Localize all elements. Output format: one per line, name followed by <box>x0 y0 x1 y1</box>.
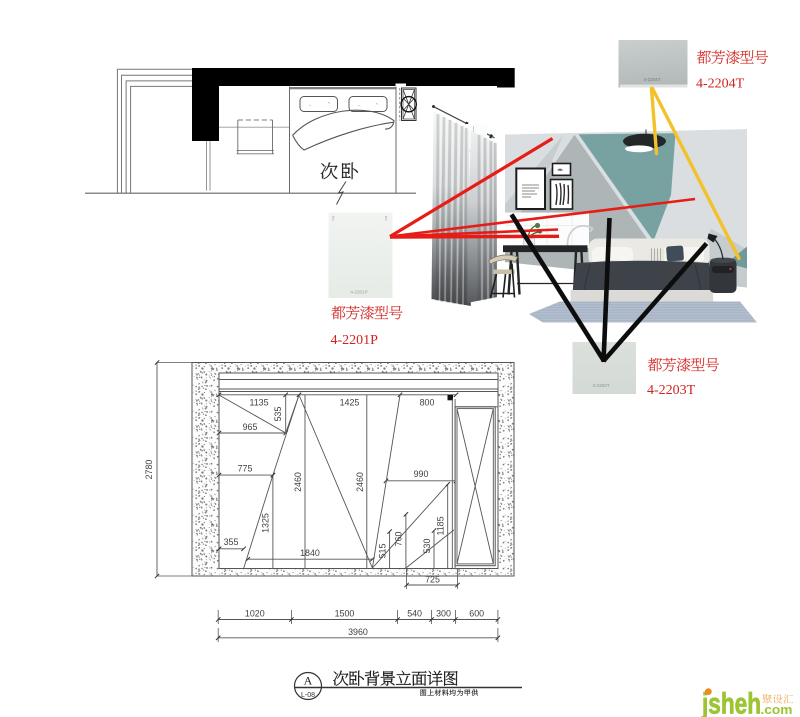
svg-text:4-2203T: 4-2203T <box>592 383 609 388</box>
svg-text:2460: 2460 <box>293 472 303 492</box>
svg-text:530: 530 <box>422 539 432 554</box>
svg-text:4-2201P: 4-2201P <box>331 333 379 348</box>
svg-text:4-2204T: 4-2204T <box>643 77 660 82</box>
svg-text:4-2204T: 4-2204T <box>696 77 745 92</box>
svg-text:535: 535 <box>273 407 283 422</box>
svg-text:990: 990 <box>414 469 429 479</box>
svg-text:1325: 1325 <box>261 513 271 533</box>
svg-text:725: 725 <box>425 575 440 585</box>
svg-text:600: 600 <box>469 609 484 619</box>
svg-text:800: 800 <box>420 398 435 408</box>
svg-text:300: 300 <box>436 609 451 619</box>
svg-text:4-2201P: 4-2201P <box>350 290 367 295</box>
svg-text:515: 515 <box>377 544 387 559</box>
svg-text:A: A <box>304 674 313 688</box>
svg-text:2460: 2460 <box>355 472 365 492</box>
svg-text:1135: 1135 <box>249 398 268 408</box>
svg-text:965: 965 <box>243 422 258 432</box>
svg-text:1020: 1020 <box>245 609 265 619</box>
svg-text:1185: 1185 <box>436 516 446 535</box>
svg-text:540: 540 <box>407 609 422 619</box>
svg-text:L-08: L-08 <box>301 692 315 699</box>
svg-text:355: 355 <box>224 537 239 547</box>
svg-text:1840: 1840 <box>300 548 320 558</box>
svg-text:3960: 3960 <box>348 627 368 637</box>
svg-text:2780: 2780 <box>144 460 154 480</box>
svg-text:.com: .com <box>761 703 793 717</box>
svg-text:1425: 1425 <box>340 398 360 408</box>
svg-text:1500: 1500 <box>335 609 355 619</box>
svg-text:4-2203T: 4-2203T <box>647 383 696 398</box>
svg-text:775: 775 <box>238 464 253 474</box>
svg-text:760: 760 <box>394 532 404 547</box>
